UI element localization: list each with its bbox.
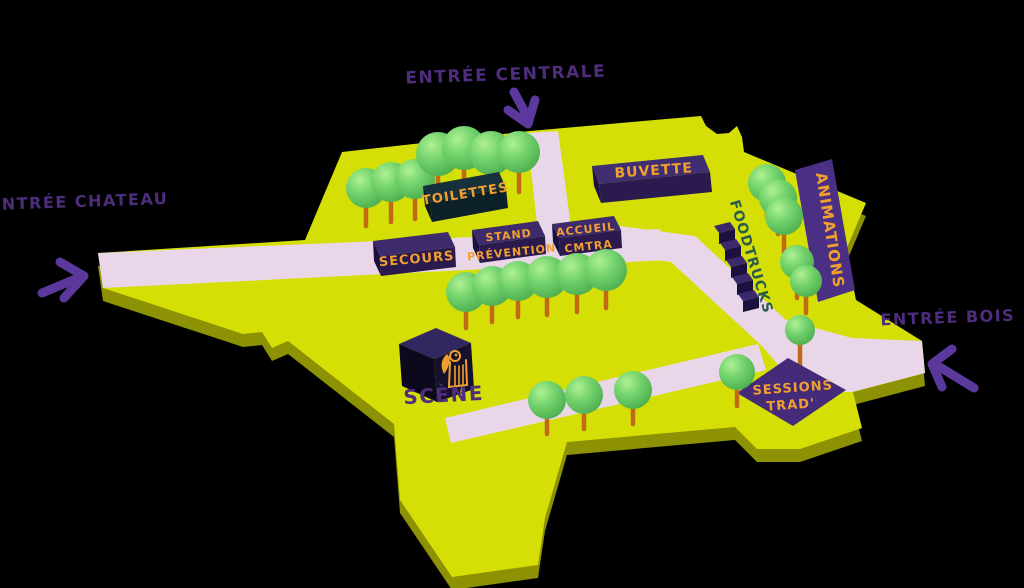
tree-canopy [719,354,755,390]
festival-map-canvas: TOILETTES BUVETTE SECOURS STAND PRÉVENTI… [0,0,1024,588]
scene-label: SCÈNE [403,381,485,409]
tree-canopy [765,197,803,235]
tree-canopy [585,249,627,291]
festival-map: TOILETTES BUVETTE SECOURS STAND PRÉVENTI… [0,0,1024,588]
tree-canopy [498,131,540,173]
tree-canopy [528,381,566,419]
tree-canopy [614,371,652,409]
tree-canopy [785,315,815,345]
tree-canopy [790,265,822,297]
tree-canopy [565,376,603,414]
